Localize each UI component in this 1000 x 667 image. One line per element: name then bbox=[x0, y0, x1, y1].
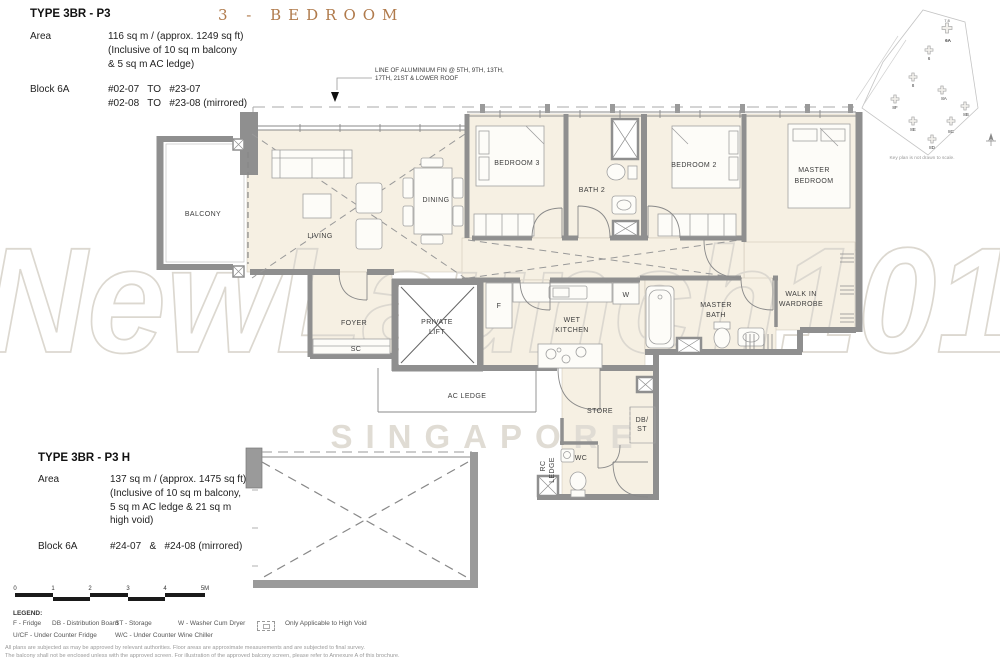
room-label-private-lift: PRIVATE bbox=[421, 319, 453, 326]
keyplan-block: 6 bbox=[928, 56, 931, 61]
room-label-master-bath: BATH bbox=[706, 312, 726, 319]
fin-note-line: 17TH, 21ST & LOWER ROOF bbox=[375, 75, 458, 82]
room-label-wc: WC bbox=[575, 455, 587, 462]
scale-tick: 3 bbox=[126, 586, 130, 592]
room-label-rc-ledge: RC bbox=[540, 461, 547, 472]
sink-icon bbox=[738, 328, 764, 346]
bed-icon bbox=[672, 126, 740, 188]
room-label-washer: W bbox=[622, 292, 629, 299]
toilet-icon bbox=[714, 322, 730, 348]
keyplan-block: 8B bbox=[963, 112, 969, 117]
keyplan-block: 6A bbox=[945, 38, 952, 43]
hob-icon bbox=[538, 344, 602, 368]
room-label-private-lift: LIFT bbox=[429, 329, 445, 336]
keyplan-block: 8A bbox=[941, 96, 948, 101]
toilet-icon bbox=[570, 472, 586, 497]
keyplan-block: 8 bbox=[912, 83, 915, 88]
scale-tick: 4 bbox=[163, 586, 167, 592]
scale-bar: 0 1 2 3 4 5M bbox=[13, 586, 209, 601]
keyplan-block: 8D bbox=[929, 145, 936, 150]
room-label-sc: SC bbox=[351, 346, 362, 353]
room-label-bath2: BATH 2 bbox=[579, 187, 605, 194]
wardrobe-icon bbox=[658, 214, 736, 236]
bed-icon bbox=[476, 126, 544, 186]
north-arrow-icon bbox=[986, 134, 996, 146]
room-label-wet-kitchen: KITCHEN bbox=[555, 327, 589, 334]
keyplan-block: 8F bbox=[892, 105, 898, 110]
room-label-master-bath: MASTER bbox=[700, 302, 732, 309]
room-label-living: LIVING bbox=[307, 233, 332, 240]
wardrobe-icon bbox=[474, 214, 534, 236]
room-label-db-st: DB/ bbox=[636, 417, 649, 424]
scale-tick: 5M bbox=[201, 586, 209, 592]
room-label-walk-in-wardrobe: WARDROBE bbox=[779, 301, 823, 308]
shower-icon bbox=[612, 119, 638, 159]
coffee-table-icon bbox=[303, 194, 331, 218]
room-label-dining: DINING bbox=[423, 197, 450, 204]
scale-tick: 0 bbox=[13, 586, 17, 592]
room-label-wet-kitchen: WET bbox=[564, 317, 581, 324]
bed-icon bbox=[788, 124, 850, 208]
armchair-icon bbox=[356, 219, 382, 249]
room-label-balcony: BALCONY bbox=[185, 211, 221, 218]
sofa-icon bbox=[272, 150, 352, 178]
keyplan-unit-numbers: 7 8 bbox=[944, 18, 950, 23]
key-plan: 7 8 6A 6 8 8A 8F 8B 8E 8C 8D Key plan is… bbox=[856, 10, 996, 161]
fin-note: LINE OF ALUMINIUM FIN @ 5TH, 9TH, 13TH, … bbox=[375, 67, 504, 82]
floorplan-canvas: NewLaunch101 SINGAPORE LINE OF ALUMINIUM… bbox=[0, 0, 1000, 667]
fin-note-line: LINE OF ALUMINIUM FIN @ 5TH, 9TH, 13TH, bbox=[375, 67, 504, 74]
kitchen-counter-icon bbox=[513, 283, 612, 302]
bathtub-icon bbox=[646, 286, 674, 348]
keyplan-block: 8E bbox=[910, 127, 916, 132]
room-label-bedroom2: BEDROOM 2 bbox=[671, 162, 717, 169]
fin-arrow-icon bbox=[331, 92, 339, 102]
high-void-plan bbox=[252, 452, 478, 586]
brochure-page: TYPE 3BR - P3 Area 116 sq m / (approx. 1… bbox=[0, 0, 1000, 667]
room-label-ac-ledge: AC LEDGE bbox=[448, 393, 487, 400]
scale-tick: 1 bbox=[51, 586, 55, 592]
scale-tick: 2 bbox=[88, 586, 92, 592]
watermark: NewLaunch101 SINGAPORE bbox=[0, 216, 1000, 455]
room-label-fridge: F bbox=[497, 303, 502, 310]
keyplan-caption: Key plan is not drawn to scale. bbox=[889, 155, 954, 161]
room-label-master-bedroom: MASTER bbox=[798, 167, 830, 174]
room-label-foyer: FOYER bbox=[341, 320, 367, 327]
room-label-walk-in-wardrobe: WALK IN bbox=[785, 291, 816, 298]
sink-icon bbox=[612, 196, 636, 214]
armchair-icon bbox=[356, 183, 382, 213]
room-label-bedroom3: BEDROOM 3 bbox=[494, 160, 540, 167]
room-label-master-bedroom: BEDROOM bbox=[795, 178, 834, 185]
room-label-rc-ledge: LEDGE bbox=[549, 457, 556, 483]
sink-icon bbox=[561, 449, 574, 462]
room-label-db-st: ST bbox=[637, 426, 647, 433]
toilet-icon bbox=[607, 164, 637, 180]
room-label-store: STORE bbox=[587, 408, 613, 415]
keyplan-block: 8C bbox=[948, 129, 955, 134]
